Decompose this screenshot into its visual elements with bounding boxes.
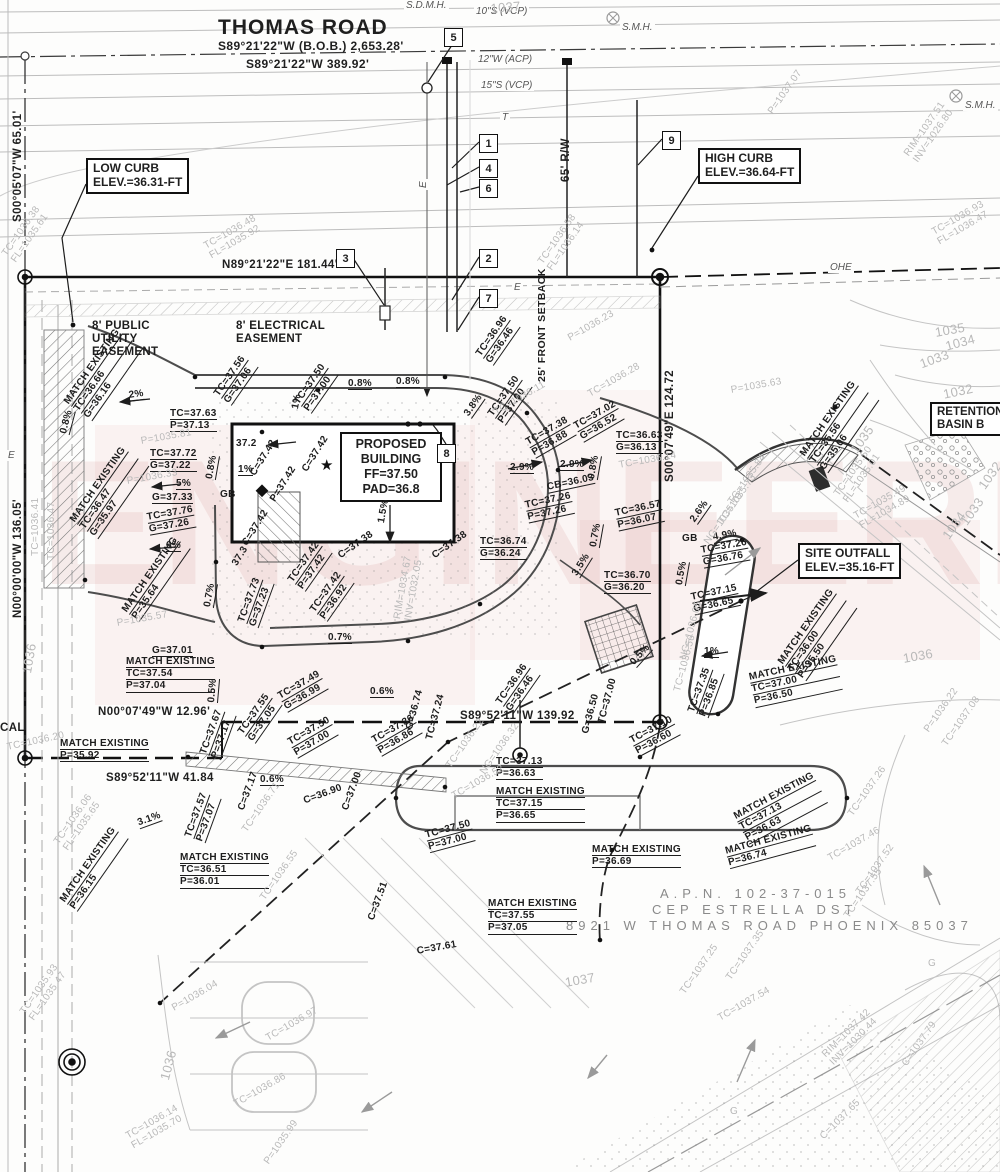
site-plan-sheet: ENGINEERING: [0, 0, 1000, 1172]
site-plan-linework: [0, 0, 1000, 1172]
